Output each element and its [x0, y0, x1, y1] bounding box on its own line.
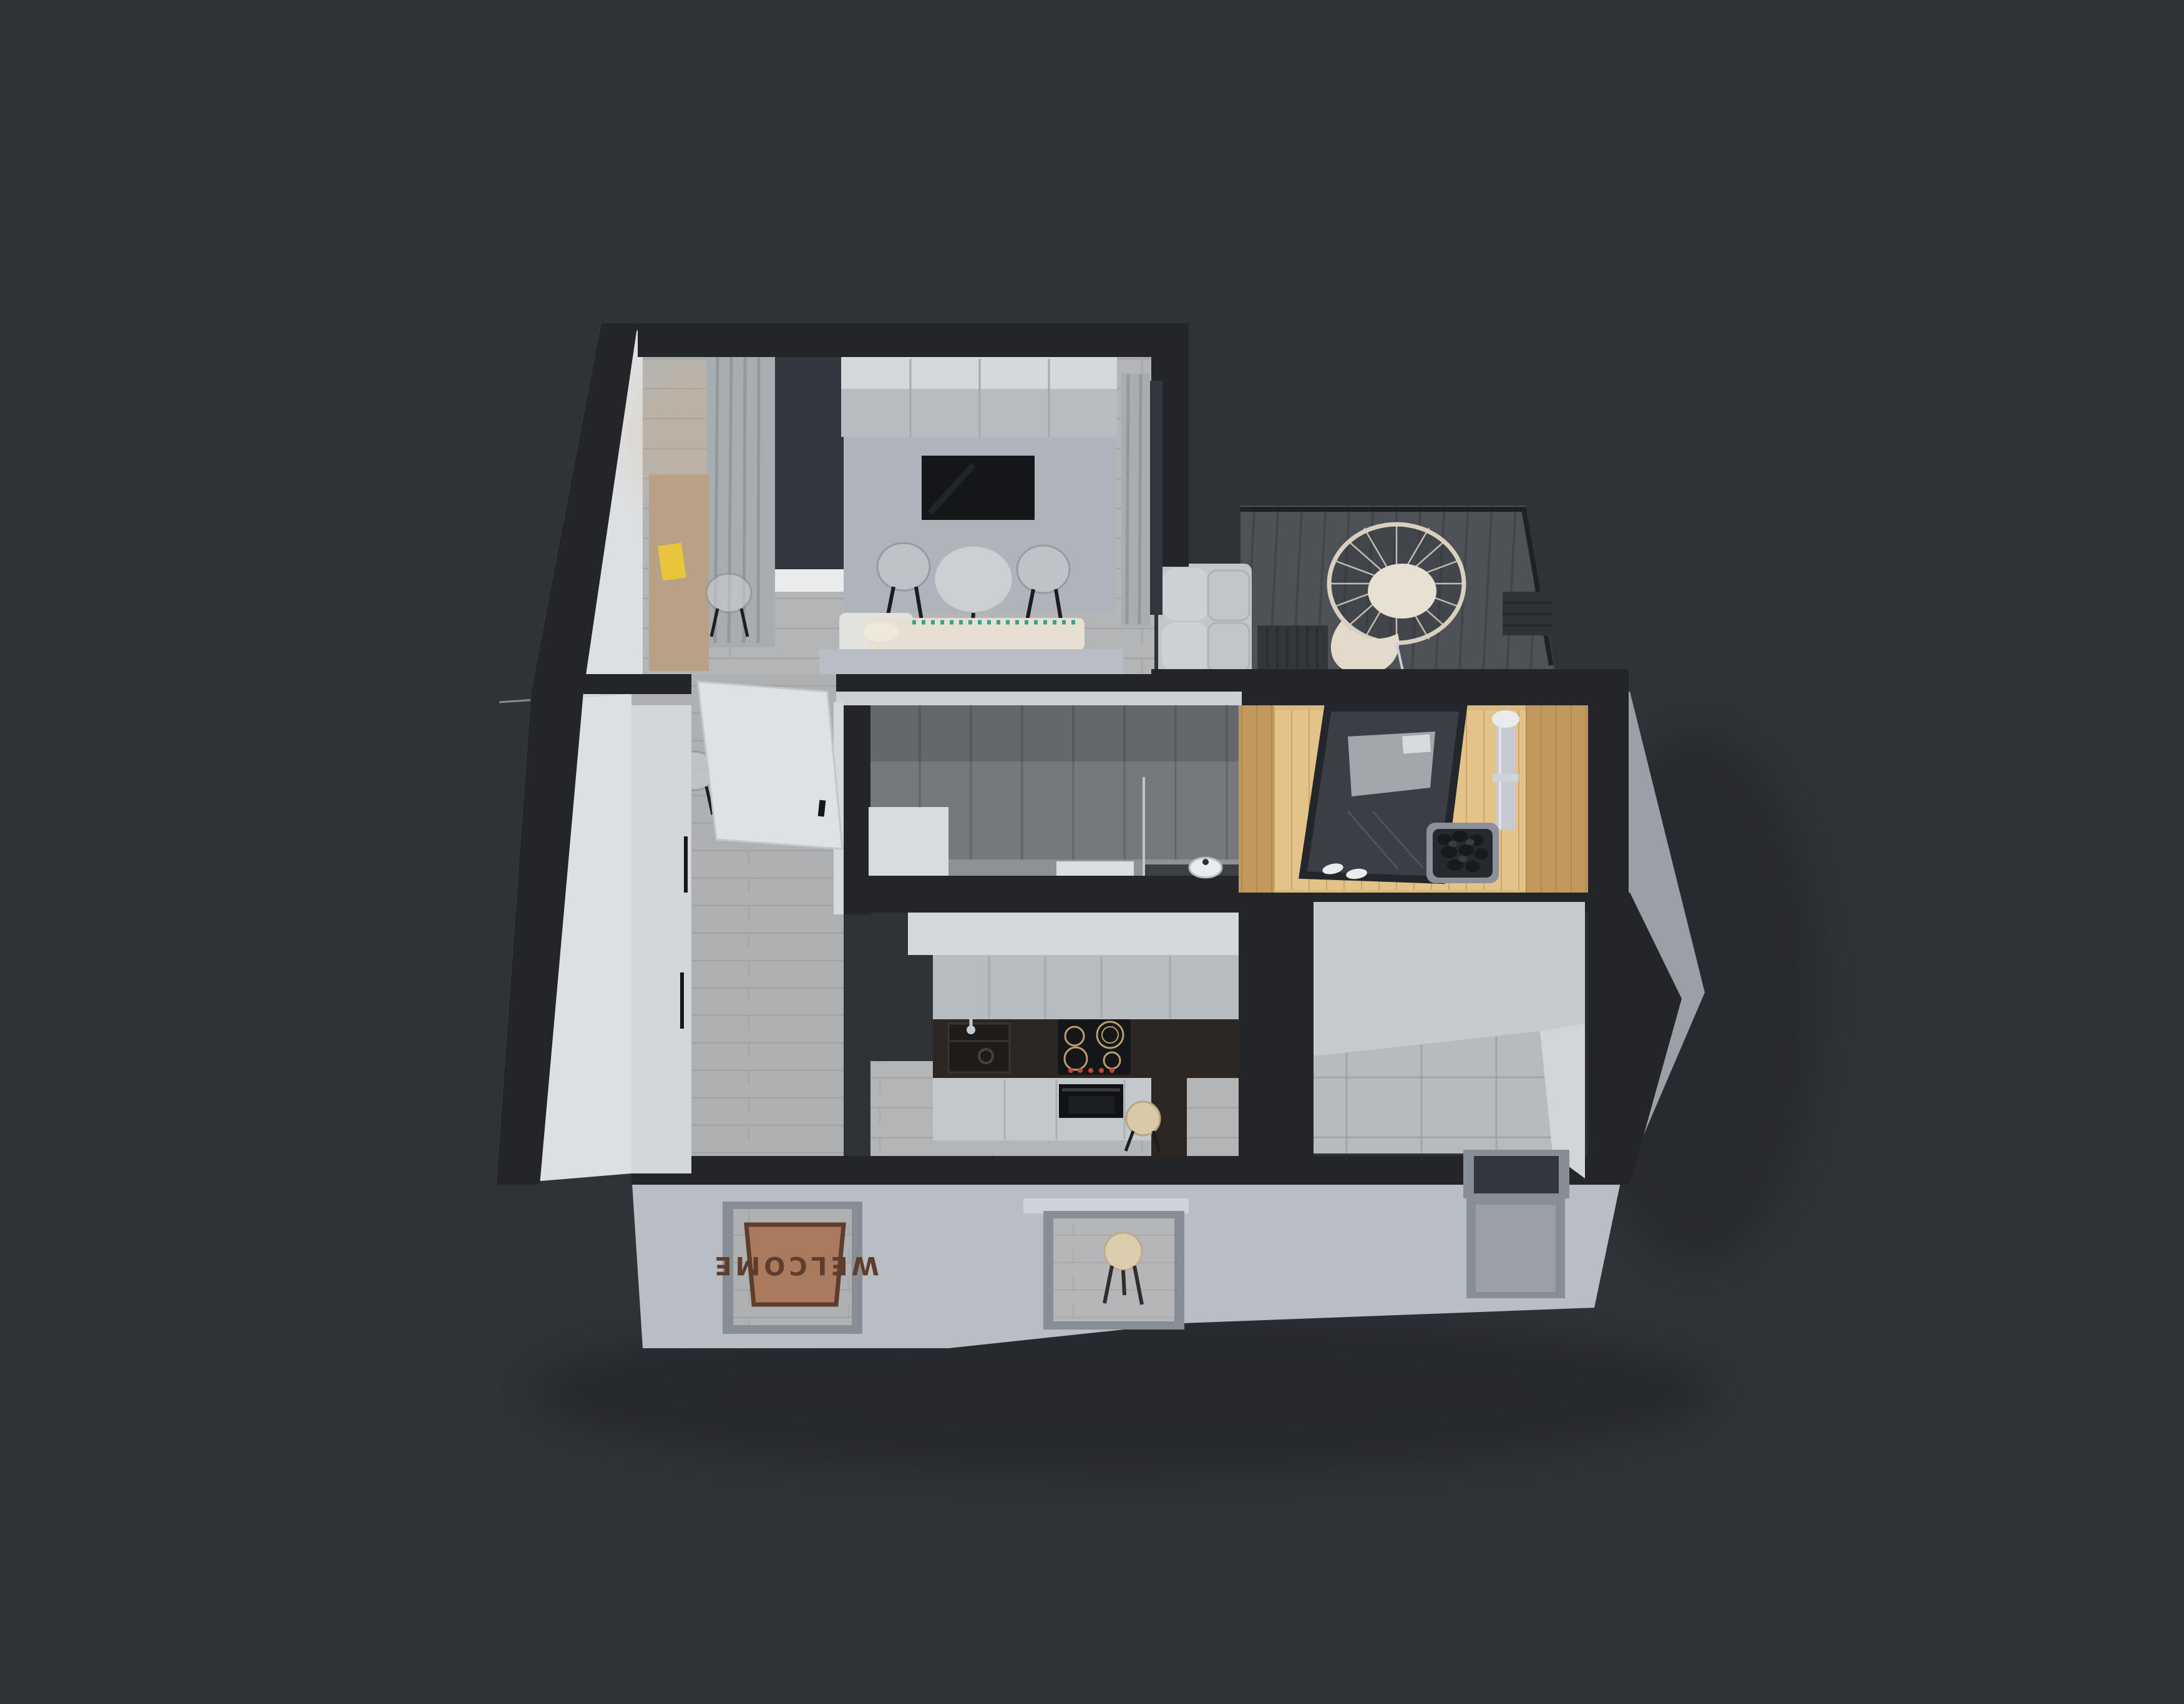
bed-duvet: [867, 618, 1085, 650]
yellow-notebook: [658, 543, 686, 581]
toilet-hinge: [1202, 859, 1209, 865]
upper-cabinet-front: [933, 955, 1239, 1019]
bathroom: [869, 705, 1239, 878]
pillow-reflection: [1402, 734, 1431, 753]
bath-wall-top-trim: [836, 692, 1242, 705]
welcome-mat-text: WELCOME: [711, 1251, 879, 1280]
bed: [819, 613, 1123, 675]
dining-table: [934, 546, 1013, 613]
curtain-terrace: [1121, 373, 1150, 626]
terrace-door-glass: [1150, 381, 1163, 615]
window-sill: [773, 569, 851, 592]
wardrobe-handle: [680, 972, 684, 1029]
bed-pillow: [864, 622, 899, 642]
sofa-seat-cushion: [1208, 623, 1249, 672]
sauna-east-wall-face: [1526, 705, 1588, 893]
entrance-door: WELCOME: [711, 1202, 879, 1334]
window-glass-sheen: [1053, 1218, 1174, 1321]
open-interior-door: [698, 682, 842, 849]
acapulco-cushion: [1368, 564, 1436, 619]
sofa-seat-cushion: [1208, 570, 1249, 620]
outdoor-sofa: [1158, 564, 1252, 676]
bathroom-cabinet: [869, 807, 948, 876]
window-glass: [775, 353, 849, 570]
bathroom-counter: [1056, 861, 1134, 876]
utility-exterior-door-glass: [1476, 1205, 1556, 1292]
sauna-east-wall: [1588, 692, 1629, 898]
oven: [1059, 1084, 1123, 1118]
bathroom-wall-shade: [870, 705, 1239, 761]
north-wall-cut: [638, 323, 1189, 357]
tv-screen: [922, 456, 1035, 520]
utility-door-glass: [1474, 1156, 1559, 1193]
terrace-coffee-table: [1257, 625, 1328, 669]
wardrobe-handle: [684, 836, 688, 893]
floor-plan-svg: WELCOME: [0, 0, 2184, 1704]
floor-plan-stage: WELCOME: [0, 0, 2184, 1704]
chimney-top: [1492, 710, 1519, 728]
kitchen-sink: [948, 1019, 1010, 1072]
wardrobe: [631, 705, 691, 1173]
sofa-back-cushion: [1162, 568, 1209, 620]
sofa-back-cushion: [1162, 622, 1209, 672]
kitchen-window: [1023, 1198, 1189, 1329]
sauna: [1239, 705, 1588, 893]
sauna-west-wall: [1239, 705, 1274, 893]
living-hall-wall: [583, 674, 693, 694]
terrace-side-table: [1503, 592, 1553, 635]
bed-headboard: [819, 649, 1123, 675]
kitchen-utility-wall: [1239, 913, 1314, 1156]
oven-window: [1068, 1096, 1114, 1114]
upper-cabinet-top: [908, 913, 1239, 955]
chimney-collar: [1493, 774, 1519, 781]
utility-exterior-door: [1466, 1198, 1565, 1298]
induction-hob: [1058, 1019, 1131, 1075]
